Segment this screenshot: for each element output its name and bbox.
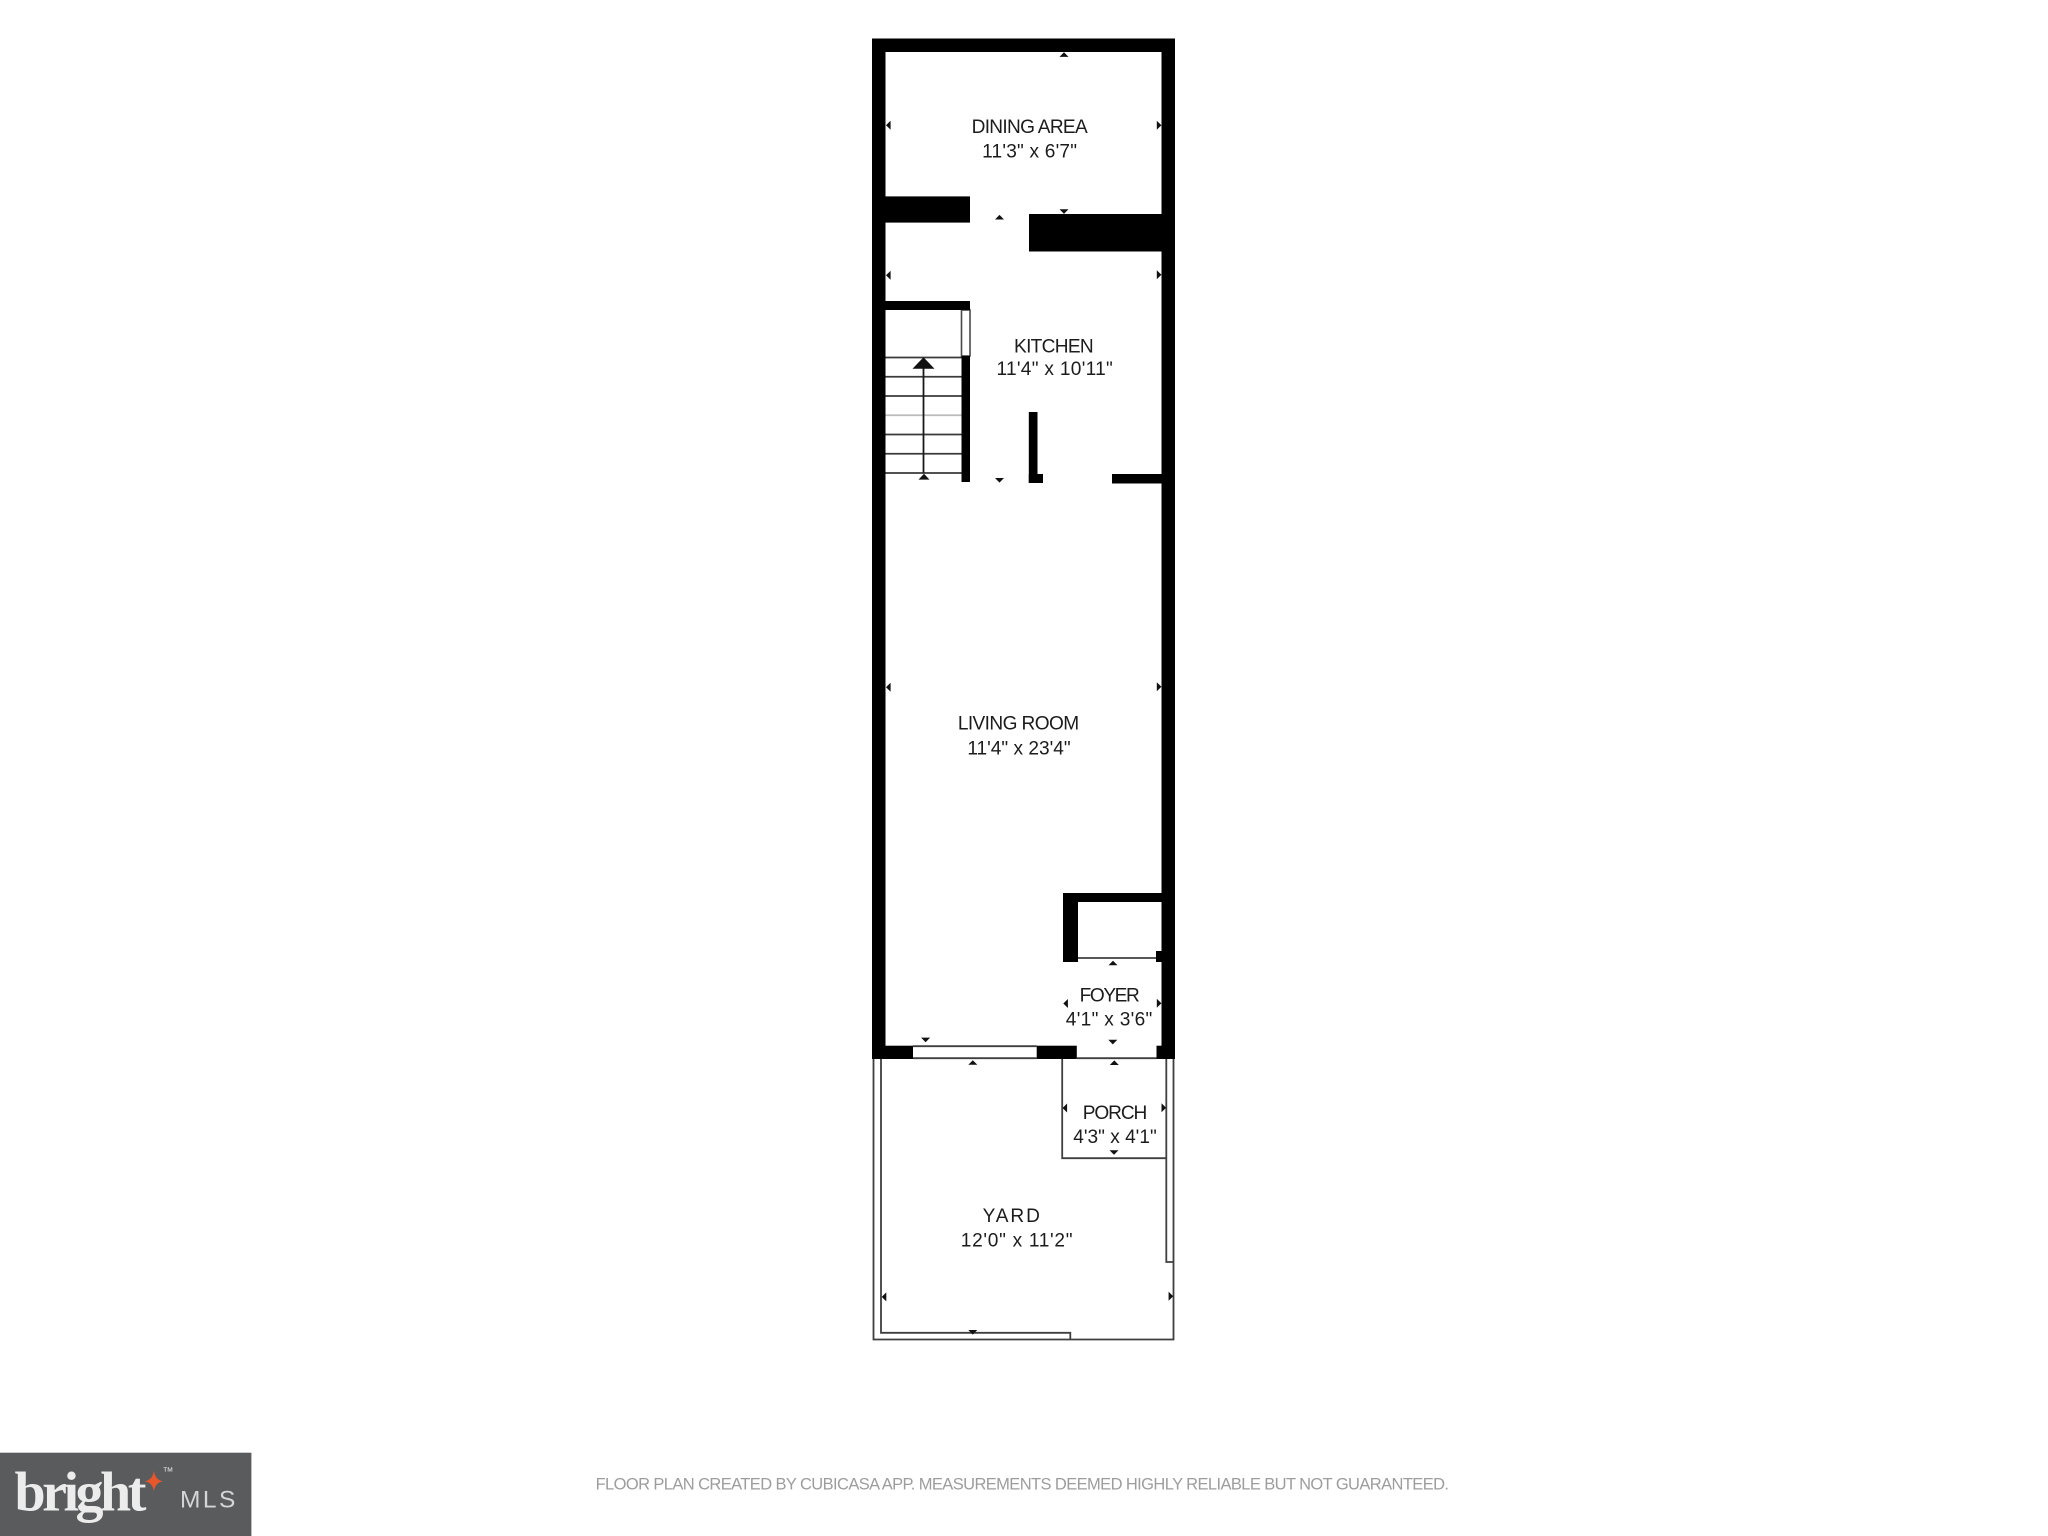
svg-text:™: ™ xyxy=(163,1466,174,1478)
svg-text:12'0" x 11'2": 12'0" x 11'2" xyxy=(961,1231,1073,1252)
svg-text:PORCH: PORCH xyxy=(1083,1103,1147,1124)
svg-text:MLS: MLS xyxy=(180,1486,238,1513)
svg-text:KITCHEN: KITCHEN xyxy=(1014,336,1093,357)
svg-text:4'1" x 3'6": 4'1" x 3'6" xyxy=(1066,1010,1153,1031)
svg-text:4'3" x 4'1": 4'3" x 4'1" xyxy=(1073,1127,1156,1148)
svg-text:FLOOR PLAN CREATED BY CUBICASA: FLOOR PLAN CREATED BY CUBICASA APP. MEAS… xyxy=(596,1475,1449,1493)
svg-text:11'4" x 10'11": 11'4" x 10'11" xyxy=(996,359,1113,380)
svg-text:DINING AREA: DINING AREA xyxy=(972,117,1088,138)
svg-text:11'3" x 6'7": 11'3" x 6'7" xyxy=(982,142,1077,163)
svg-text:11'4" x 23'4": 11'4" x 23'4" xyxy=(967,738,1070,759)
svg-text:FOYER: FOYER xyxy=(1080,985,1139,1006)
svg-text:bright: bright xyxy=(15,1462,147,1524)
svg-text:LIVING ROOM: LIVING ROOM xyxy=(958,714,1079,735)
svg-text:YARD: YARD xyxy=(983,1206,1042,1227)
